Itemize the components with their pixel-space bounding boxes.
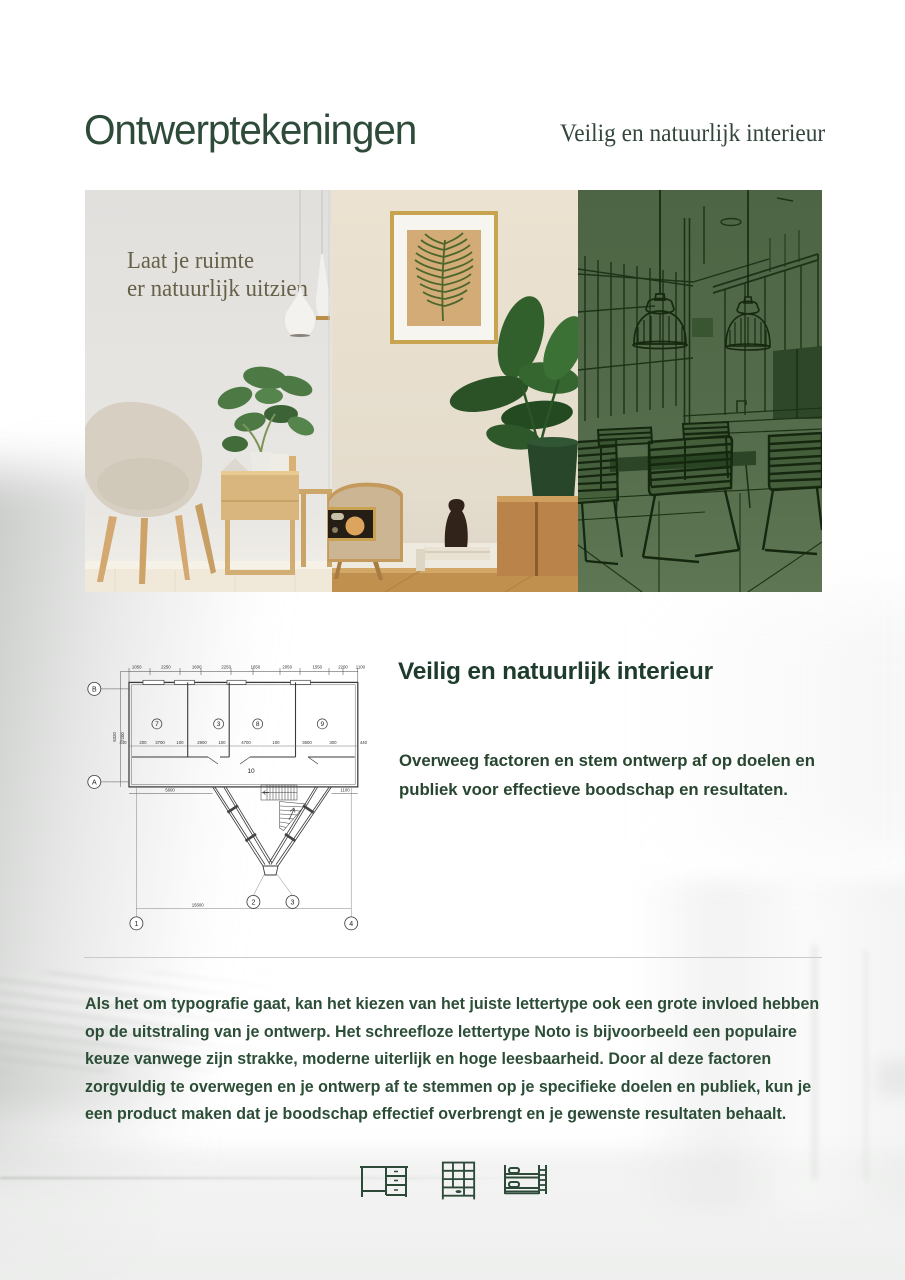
svg-text:1650: 1650 <box>251 665 261 670</box>
svg-text:4700: 4700 <box>241 740 251 745</box>
svg-text:1550: 1550 <box>313 665 323 670</box>
svg-text:200: 200 <box>139 740 147 745</box>
svg-text:9: 9 <box>320 721 324 728</box>
svg-text:8: 8 <box>256 721 260 728</box>
svg-text:3: 3 <box>217 721 221 728</box>
svg-text:Laat je ruimte: Laat je ruimte <box>127 248 254 274</box>
svg-text:2200: 2200 <box>338 665 348 670</box>
svg-text:5600: 5600 <box>165 788 175 793</box>
svg-text:2: 2 <box>251 900 255 907</box>
svg-text:er natuurlijk uitzien: er natuurlijk uitzien <box>127 276 308 302</box>
svg-text:2050: 2050 <box>282 665 292 670</box>
svg-text:100: 100 <box>218 740 226 745</box>
svg-text:B: B <box>92 687 97 694</box>
svg-text:2250: 2250 <box>161 665 171 670</box>
svg-text:2900: 2900 <box>197 740 207 745</box>
svg-text:1: 1 <box>134 921 138 928</box>
svg-text:7200: 7200 <box>120 732 125 742</box>
svg-text:15600: 15600 <box>192 903 205 908</box>
svg-text:440: 440 <box>360 740 368 745</box>
svg-text:A: A <box>92 780 97 787</box>
svg-text:4: 4 <box>349 921 353 928</box>
svg-text:10: 10 <box>247 768 255 775</box>
svg-text:1100: 1100 <box>340 788 350 793</box>
svg-text:100: 100 <box>176 740 184 745</box>
svg-text:1600: 1600 <box>192 665 202 670</box>
svg-text:1100: 1100 <box>356 665 366 670</box>
svg-text:2250: 2250 <box>221 665 231 670</box>
svg-text:3700: 3700 <box>155 740 165 745</box>
svg-text:6320: 6320 <box>112 732 117 742</box>
svg-text:3: 3 <box>291 900 295 907</box>
svg-text:3600: 3600 <box>302 740 312 745</box>
svg-text:300: 300 <box>329 740 337 745</box>
svg-text:7: 7 <box>155 721 159 728</box>
svg-text:100: 100 <box>272 740 280 745</box>
svg-text:1050: 1050 <box>132 665 142 670</box>
